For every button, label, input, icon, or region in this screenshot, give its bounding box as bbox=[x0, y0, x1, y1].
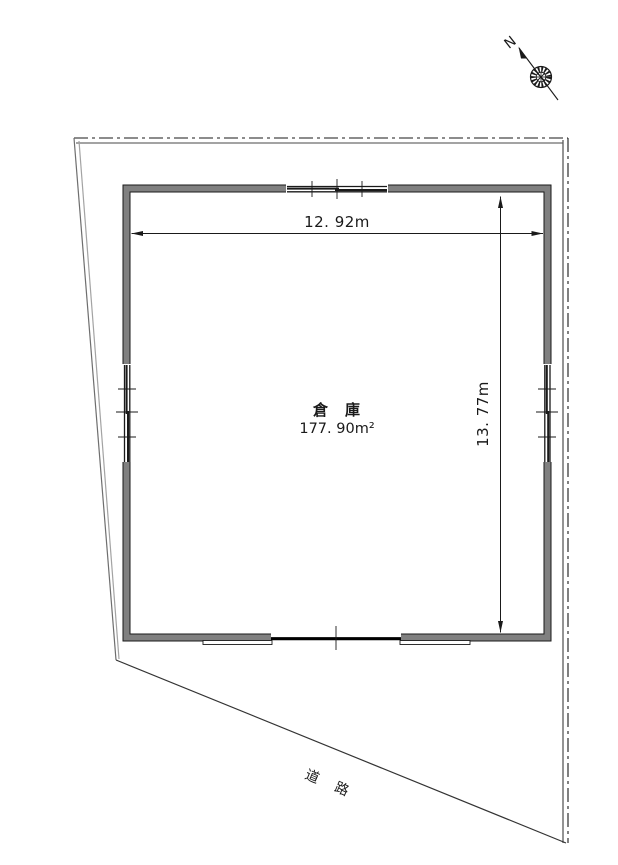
compass-rose-icon bbox=[531, 67, 552, 88]
road-label: 道 路 bbox=[302, 767, 352, 800]
height-dimension-label: 13. 77m bbox=[474, 381, 492, 447]
width-dimension-label: 12. 92m bbox=[304, 213, 370, 231]
boundary-road-diagonal bbox=[116, 660, 566, 843]
north-arrow: N bbox=[501, 33, 558, 100]
site-plan-canvas: 12. 92m 13. 77m 倉 庫 177. 90m² N 道 路 bbox=[0, 0, 618, 865]
boundary-left-outer bbox=[74, 138, 116, 660]
building-area-label: 177. 90m² bbox=[299, 421, 374, 437]
door-leaf-right bbox=[400, 641, 470, 645]
door-leaf-left bbox=[203, 641, 272, 645]
north-label: N bbox=[501, 33, 519, 52]
boundary-left-inner bbox=[79, 141, 119, 659]
building-name-label: 倉 庫 bbox=[312, 401, 361, 419]
site-plan-drawing: 12. 92m 13. 77m 倉 庫 177. 90m² N 道 路 bbox=[0, 0, 618, 865]
road-label-text: 道 路 bbox=[302, 767, 352, 800]
